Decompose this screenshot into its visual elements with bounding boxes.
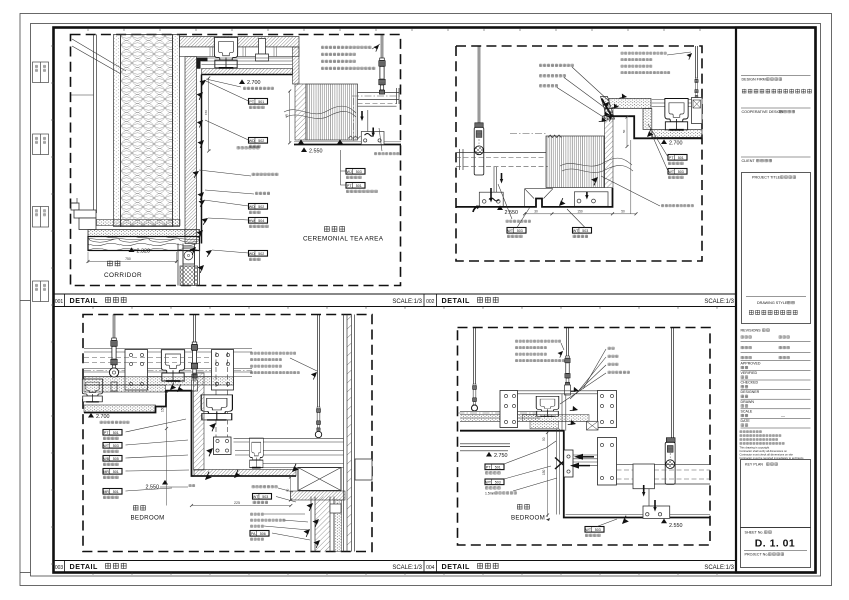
svg-text:2.550: 2.550 — [146, 485, 160, 491]
svg-text:1.5mm: 1.5mm — [485, 492, 496, 496]
svg-text:MR: MR — [103, 490, 109, 494]
svg-text:30: 30 — [534, 210, 538, 214]
svg-text:505: 505 — [113, 457, 119, 461]
svg-text:This drawing is copyright: This drawing is copyright — [740, 445, 770, 449]
svg-text:DRAWING STYLE: DRAWING STYLE — [757, 301, 788, 305]
svg-text:503: 503 — [582, 229, 588, 233]
svg-text:DATE: DATE — [741, 419, 751, 423]
svg-text:KEY PLAN: KEY PLAN — [745, 463, 763, 467]
svg-text:2.550: 2.550 — [505, 210, 519, 216]
svg-text:503: 503 — [595, 528, 601, 532]
svg-text:CORRIDOR: CORRIDOR — [104, 272, 142, 279]
svg-text:506: 506 — [260, 532, 266, 536]
svg-text:2.320: 2.320 — [137, 249, 151, 255]
svg-text:COOPERATIVE DESIGN: COOPERATIVE DESIGN — [742, 110, 784, 114]
svg-text:SCALE:1/3: SCALE:1/3 — [392, 299, 422, 305]
svg-text:REVISIONS: REVISIONS — [741, 329, 762, 333]
svg-text:SHEET No.: SHEET No. — [745, 531, 764, 535]
svg-text:503: 503 — [678, 170, 684, 174]
svg-text:501: 501 — [113, 490, 119, 494]
svg-text:SCALE: SCALE — [741, 409, 753, 413]
svg-text:001: 001 — [55, 299, 64, 305]
svg-text:WT: WT — [585, 528, 591, 532]
svg-text:D. 1. 01: D. 1. 01 — [755, 539, 795, 550]
svg-text:002: 002 — [426, 299, 435, 305]
svg-text:DESIGN FIRM: DESIGN FIRM — [742, 78, 766, 82]
svg-text:501: 501 — [495, 465, 501, 469]
svg-text:50: 50 — [622, 129, 626, 133]
svg-text:PA: PA — [251, 532, 256, 536]
svg-text:SCALE:1/3: SCALE:1/3 — [704, 565, 734, 571]
svg-text:DETAIL: DETAIL — [70, 562, 99, 571]
svg-text:WD: WD — [249, 252, 255, 256]
svg-text:DETAIL: DETAIL — [442, 562, 471, 571]
svg-text:VERIFIED: VERIFIED — [741, 371, 758, 375]
svg-text:—: — — [781, 413, 785, 418]
svg-text:PT: PT — [669, 156, 674, 160]
svg-text:503: 503 — [495, 480, 501, 484]
svg-text:SCALE:1/3: SCALE:1/3 — [392, 565, 422, 571]
svg-text:503: 503 — [356, 170, 362, 174]
svg-text:PT: PT — [249, 100, 254, 104]
svg-text:HW: HW — [249, 219, 256, 223]
svg-text:2.700: 2.700 — [669, 141, 683, 147]
svg-text:WT: WT — [485, 480, 491, 484]
svg-text:2.700: 2.700 — [96, 414, 110, 420]
svg-text:50: 50 — [621, 210, 625, 214]
svg-text:2.550: 2.550 — [669, 523, 683, 529]
svg-text:501: 501 — [678, 156, 684, 160]
svg-text:501: 501 — [356, 184, 362, 188]
svg-text:SCALE:1/3: SCALE:1/3 — [704, 299, 734, 305]
svg-text:501: 501 — [113, 470, 119, 474]
svg-text:003: 003 — [55, 565, 64, 571]
svg-text:PROJECT No.: PROJECT No. — [745, 553, 769, 557]
svg-text:150: 150 — [204, 110, 208, 115]
svg-text:2.550: 2.550 — [309, 149, 323, 155]
svg-text:WJ: WJ — [347, 170, 352, 174]
svg-text:WT: WT — [507, 229, 513, 233]
svg-text:PT: PT — [104, 431, 109, 435]
svg-text:DETAIL: DETAIL — [70, 296, 99, 305]
svg-text:503: 503 — [113, 444, 119, 448]
svg-text:Contractor must check all dime: Contractor must check all dimensions on … — [740, 453, 794, 457]
svg-text:APPROVED: APPROVED — [741, 361, 761, 365]
svg-text:501: 501 — [258, 100, 264, 104]
svg-text:CHECKED: CHECKED — [741, 381, 759, 385]
svg-text:DETAIL: DETAIL — [442, 296, 471, 305]
svg-text:502: 502 — [258, 252, 264, 256]
svg-text:Contractor shall verify all di: Contractor shall verify all dimensions o… — [740, 449, 788, 453]
svg-text:501: 501 — [113, 431, 119, 435]
svg-text:50: 50 — [542, 437, 546, 441]
svg-text:225: 225 — [234, 501, 240, 505]
svg-text:150: 150 — [161, 406, 165, 412]
svg-text:WT: WT — [573, 229, 579, 233]
svg-text:BEDROOM: BEDROOM — [131, 515, 165, 522]
svg-text:504: 504 — [258, 219, 264, 223]
svg-text:WT: WT — [103, 444, 109, 448]
svg-text:MR: MR — [103, 470, 109, 474]
svg-text:WB: WB — [103, 457, 109, 461]
svg-text:CEREMONIAL TEA AREA: CEREMONIAL TEA AREA — [303, 236, 384, 243]
svg-text:4/5: 4/5 — [285, 113, 289, 118]
svg-text:502: 502 — [258, 139, 264, 143]
svg-text:750: 750 — [125, 257, 131, 261]
svg-text:WD: WD — [249, 139, 255, 143]
svg-text:150: 150 — [577, 210, 583, 214]
svg-text:004: 004 — [426, 565, 435, 571]
svg-text:DESIGNER: DESIGNER — [741, 390, 760, 394]
svg-text:CLIENT: CLIENT — [742, 159, 756, 163]
svg-text:503: 503 — [262, 495, 268, 499]
svg-text:150: 150 — [542, 469, 546, 475]
svg-text:WT: WT — [253, 495, 259, 499]
svg-text:503: 503 — [517, 229, 523, 233]
svg-text:DRAWN: DRAWN — [741, 400, 755, 404]
svg-text:WD: WD — [249, 205, 255, 209]
svg-text:502: 502 — [258, 205, 264, 209]
svg-text:PT: PT — [347, 184, 352, 188]
svg-text:2.750: 2.750 — [494, 453, 508, 459]
svg-text:PROJECT TITLE: PROJECT TITLE — [752, 176, 781, 180]
svg-text:BEDROOM: BEDROOM — [511, 515, 545, 522]
svg-text:WT: WT — [668, 170, 674, 174]
svg-text:2.700: 2.700 — [247, 80, 261, 86]
svg-text:PT: PT — [486, 465, 491, 469]
